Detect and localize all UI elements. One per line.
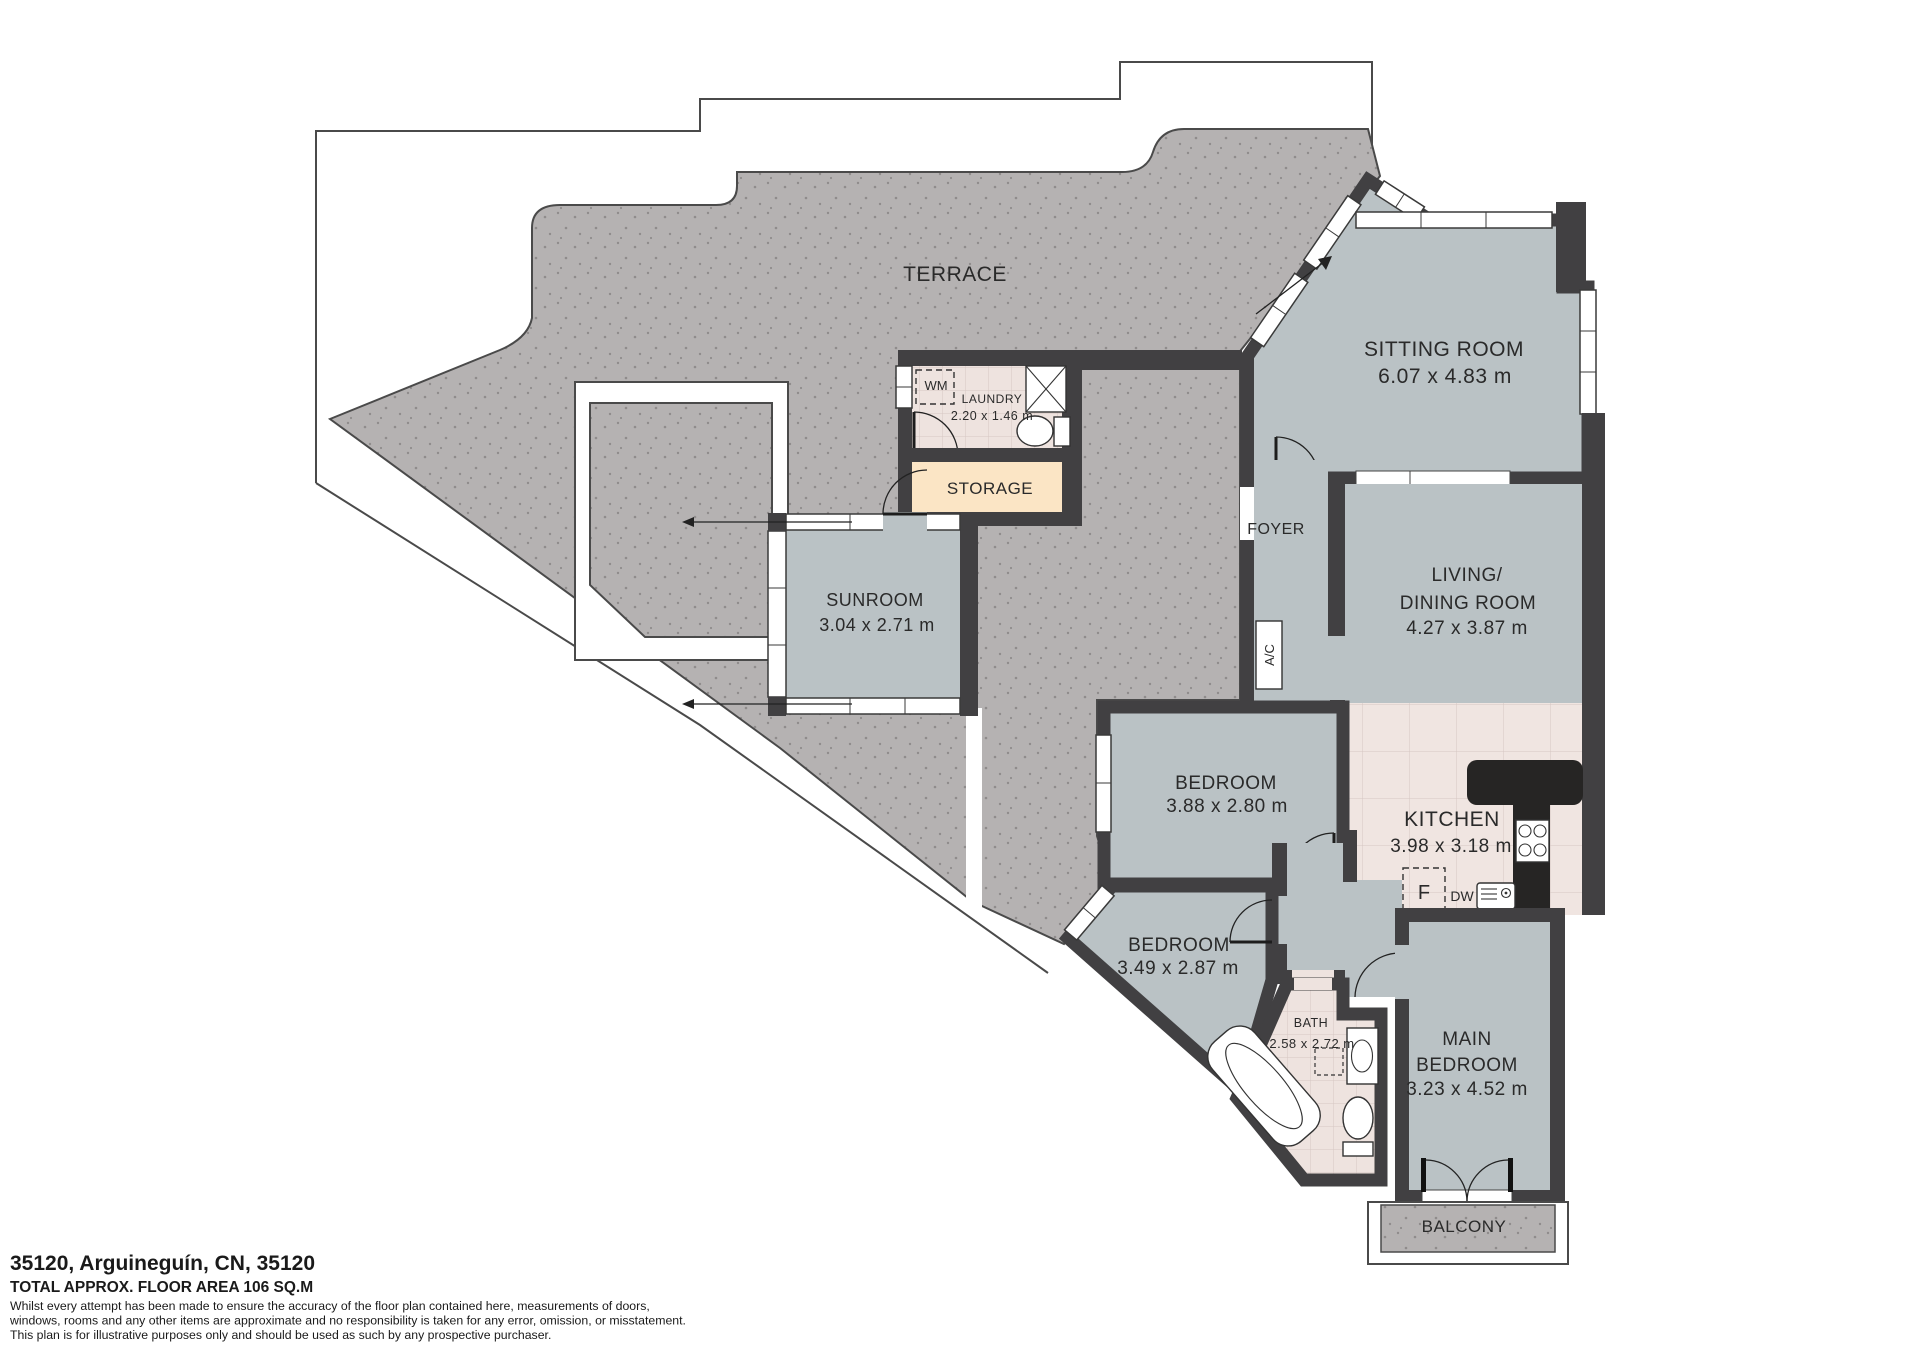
kitchen-label: KITCHEN bbox=[1404, 808, 1500, 831]
foyer-label: FOYER bbox=[1247, 521, 1305, 538]
kitchen-sink bbox=[1477, 883, 1515, 909]
disclaimer-line-3: This plan is for illustrative purposes o… bbox=[10, 1328, 551, 1342]
living-label-line2: DINING ROOM bbox=[1400, 593, 1536, 614]
bath-dims: 2.58 x 2.72 m bbox=[1269, 1036, 1354, 1051]
shower bbox=[1026, 366, 1066, 412]
balcony: BALCONY bbox=[1368, 1202, 1568, 1264]
living-dims: 4.27 x 3.87 m bbox=[1406, 618, 1528, 639]
disclaimer-line-1: Whilst every attempt has been made to en… bbox=[10, 1299, 650, 1313]
laundry-dims: 2.20 x 1.46 m bbox=[951, 409, 1033, 423]
main-bedroom-label-line2: BEDROOM bbox=[1416, 1055, 1518, 1076]
terrace-label: TERRACE bbox=[903, 263, 1007, 286]
washing-machine-label: WM bbox=[924, 378, 947, 393]
sitting-room-dims: 6.07 x 4.83 m bbox=[1378, 365, 1512, 388]
main-bedroom-label-line1: MAIN bbox=[1442, 1029, 1492, 1050]
sitting-right-windows bbox=[1580, 290, 1596, 414]
bedroom-1-label: BEDROOM bbox=[1175, 773, 1277, 794]
bedroom-1-dims: 3.88 x 2.80 m bbox=[1166, 796, 1288, 817]
sitting-room-label: SITTING ROOM bbox=[1364, 338, 1524, 361]
main-bedroom: MAIN BEDROOM 3.23 x 4.52 m bbox=[1395, 908, 1565, 1207]
total-area-text: TOTAL APPROX. FLOOR AREA 106 SQ.M bbox=[10, 1279, 313, 1296]
lightwell-island bbox=[590, 403, 772, 637]
address-text: 35120, Arguineguín, CN, 35120 bbox=[10, 1252, 315, 1275]
laundry-label: LAUNDRY bbox=[962, 392, 1023, 406]
sunroom-dims: 3.04 x 2.71 m bbox=[819, 615, 935, 635]
main-bedroom-dims: 3.23 x 4.52 m bbox=[1406, 1079, 1528, 1100]
floor-plan-drawing: TERRACE WM LAUNDRY 2.20 x 1.46 m bbox=[0, 0, 1920, 1357]
french-door-opening bbox=[1410, 471, 1510, 485]
sitting-top-windows bbox=[1356, 212, 1552, 228]
laundry-room: WM LAUNDRY 2.20 x 1.46 m bbox=[896, 350, 1082, 462]
bath-label: BATH bbox=[1294, 1016, 1328, 1030]
bedroom-2-label: BEDROOM bbox=[1128, 935, 1230, 956]
footer: 35120, Arguineguín, CN, 35120 TOTAL APPR… bbox=[9, 1252, 686, 1342]
main-bedroom-door-opening bbox=[1395, 945, 1409, 999]
balcony-label: BALCONY bbox=[1422, 1217, 1507, 1236]
walkway-gap bbox=[966, 708, 982, 908]
hob bbox=[1516, 820, 1549, 862]
bath-toilet-icon bbox=[1343, 1097, 1373, 1156]
living-opening bbox=[1356, 471, 1410, 485]
living-label-line1: LIVING/ bbox=[1431, 565, 1502, 586]
fridge-label: F bbox=[1418, 882, 1430, 904]
sunroom-label: SUNROOM bbox=[826, 590, 924, 610]
lightwell bbox=[575, 382, 788, 660]
floor-plan-page: TERRACE WM LAUNDRY 2.20 x 1.46 m bbox=[0, 0, 1920, 1357]
kitchen-dims: 3.98 x 3.18 m bbox=[1390, 836, 1512, 857]
bedroom-2-dims: 3.49 x 2.87 m bbox=[1117, 958, 1239, 979]
disclaimer-line-2: windows, rooms and any other items are a… bbox=[9, 1314, 686, 1328]
storage-label: STORAGE bbox=[947, 479, 1033, 498]
sunroom-bottom-windows bbox=[786, 698, 960, 714]
dishwasher-label: DW bbox=[1450, 888, 1474, 904]
ac-label: A/C bbox=[1262, 644, 1277, 666]
sunroom-west-windows bbox=[768, 531, 786, 697]
